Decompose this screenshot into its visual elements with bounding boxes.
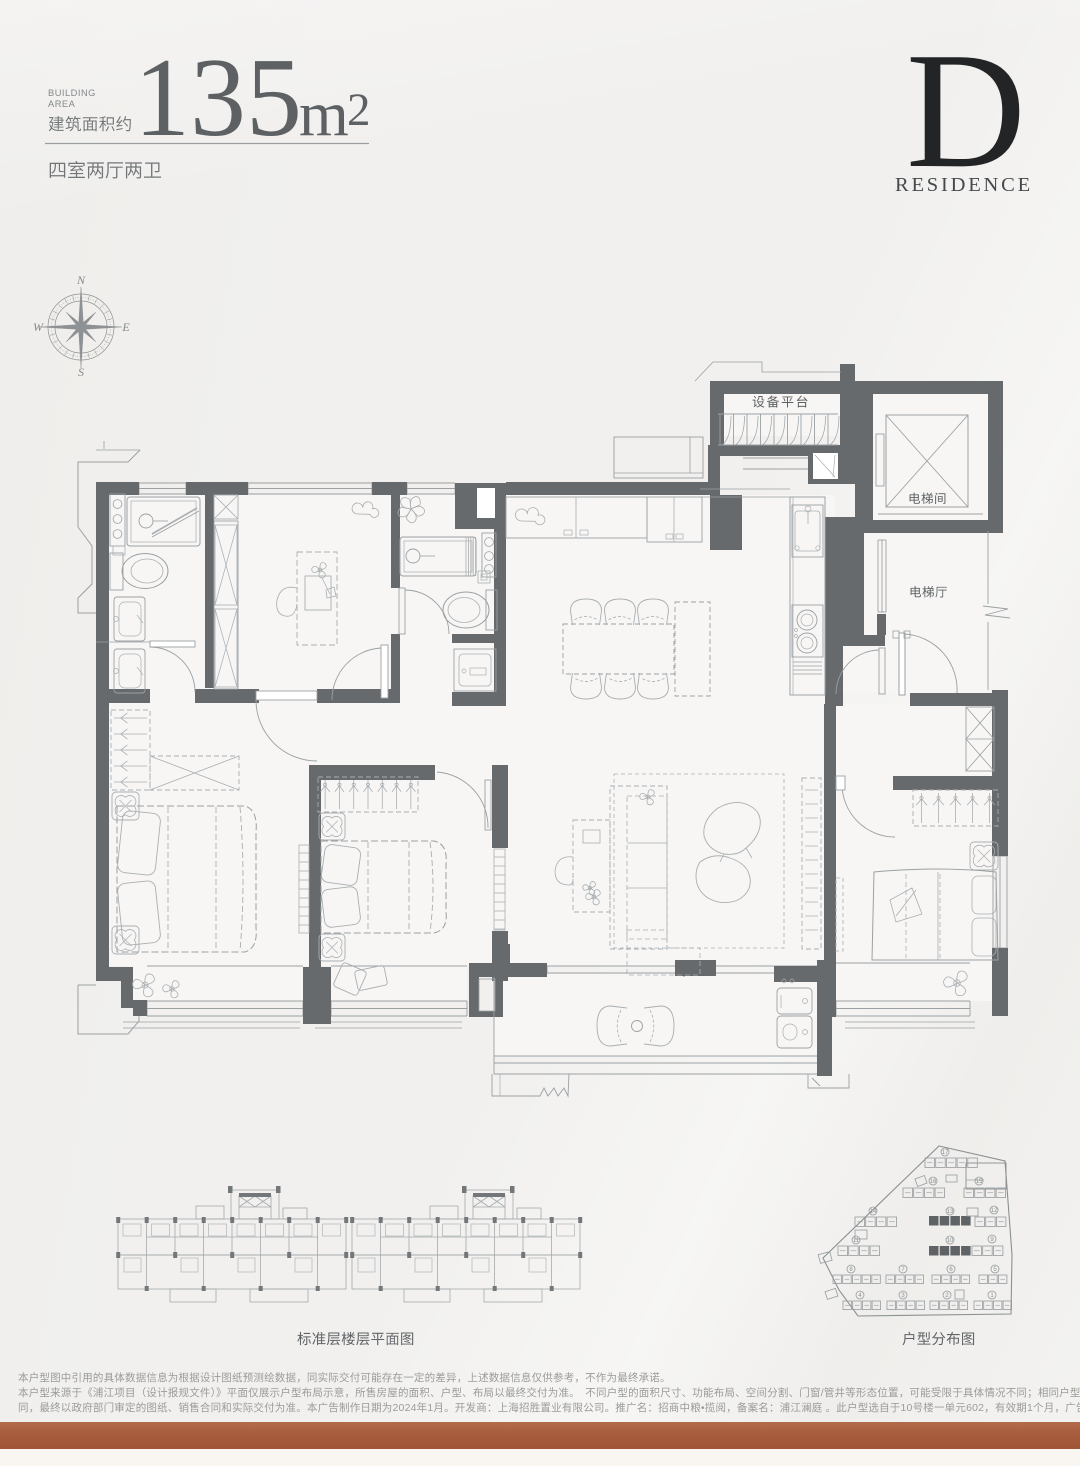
- svg-text:AREA: AREA: [48, 99, 76, 109]
- svg-text:17: 17: [942, 1150, 949, 1156]
- svg-text:S: S: [78, 365, 84, 379]
- svg-text:14: 14: [870, 1209, 877, 1215]
- svg-text:16: 16: [930, 1179, 937, 1185]
- svg-text:10: 10: [947, 1238, 954, 1244]
- svg-text:W: W: [33, 320, 44, 334]
- svg-text:本户型图中引用的具体数据信息为根据设计图纸预测绘数据，同实际: 本户型图中引用的具体数据信息为根据设计图纸预测绘数据，同实际交付可能存在一定的差…: [18, 1371, 671, 1384]
- svg-text:135: 135: [134, 36, 302, 160]
- svg-text:m: m: [299, 78, 349, 149]
- svg-text:N: N: [76, 273, 86, 287]
- svg-text:13: 13: [947, 1209, 954, 1215]
- svg-text:2: 2: [347, 84, 371, 136]
- svg-text:15: 15: [976, 1179, 983, 1185]
- svg-text:RESIDENCE: RESIDENCE: [895, 174, 1033, 196]
- svg-text:BUILDING: BUILDING: [48, 88, 96, 98]
- svg-text:本户型来源于《浦江项目（设计报规文件）》平面仅展示户型布局示: 本户型来源于《浦江项目（设计报规文件）》平面仅展示户型布局示意，所售房屋的面积、…: [18, 1386, 1080, 1399]
- svg-text:同，最终以政府部门审定的图纸、销售合同和实际交付为准。本广告: 同，最终以政府部门审定的图纸、销售合同和实际交付为准。本广告制作日期为2024年…: [18, 1401, 1080, 1414]
- svg-text:12: 12: [991, 1208, 998, 1214]
- svg-text:E: E: [121, 320, 130, 334]
